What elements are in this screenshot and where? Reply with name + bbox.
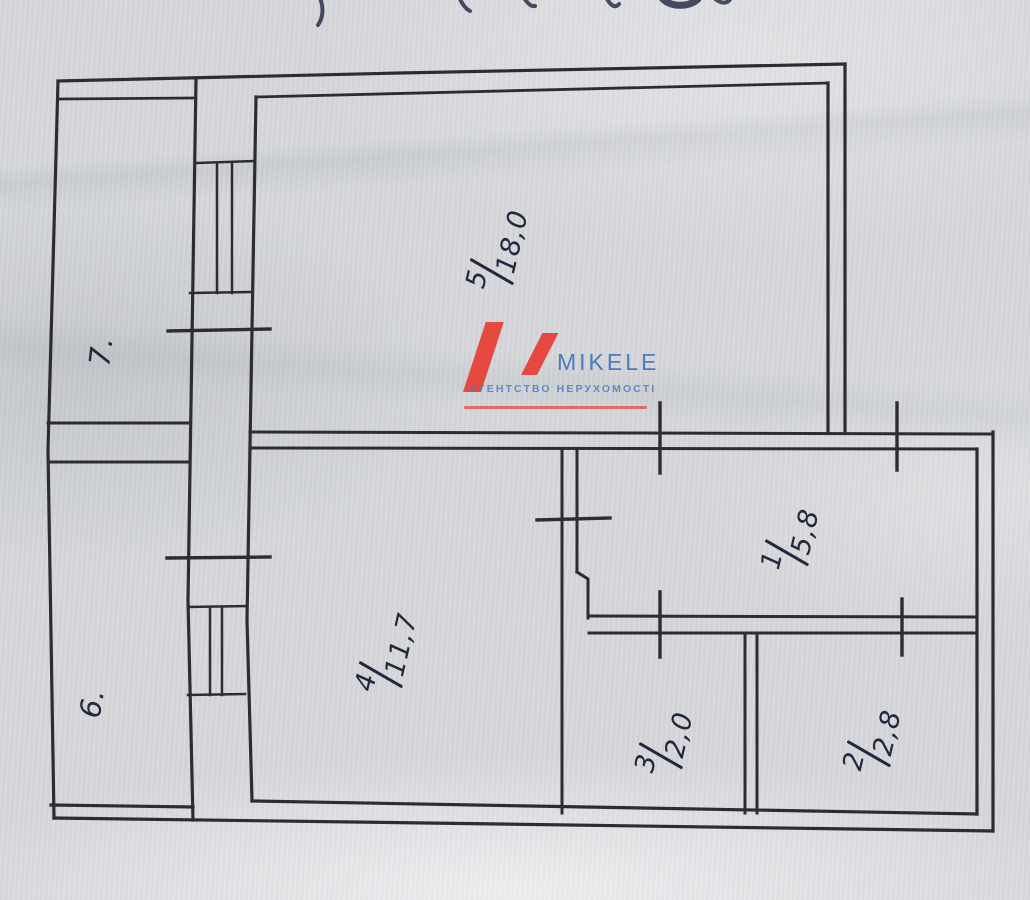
logo-brand-name: MIKELE — [557, 349, 659, 376]
scanned-floor-plan-page: 5 18,0 4 11,7 1 5,8 3 2,0 2 2,8 7. 6. MI… — [0, 0, 1030, 900]
logo-slash-icon — [463, 322, 504, 392]
room-number: 6. — [73, 685, 112, 720]
logo-slash-icon — [521, 333, 558, 375]
window-symbols — [188, 161, 254, 695]
mikele-logo: MIKELE АГЕНТСТВО НЕРУХОМОСТІ — [452, 316, 662, 416]
room-label-6: 6. — [73, 685, 112, 720]
handwriting-strokes — [318, 0, 731, 25]
room-number: 7. — [82, 334, 119, 368]
inner-top-walls — [60, 83, 828, 99]
room-label-7: 7. — [82, 334, 119, 368]
logo-tagline: АГЕНТСТВО НЕРУХОМОСТІ — [469, 383, 656, 395]
logo-underline — [464, 406, 647, 409]
